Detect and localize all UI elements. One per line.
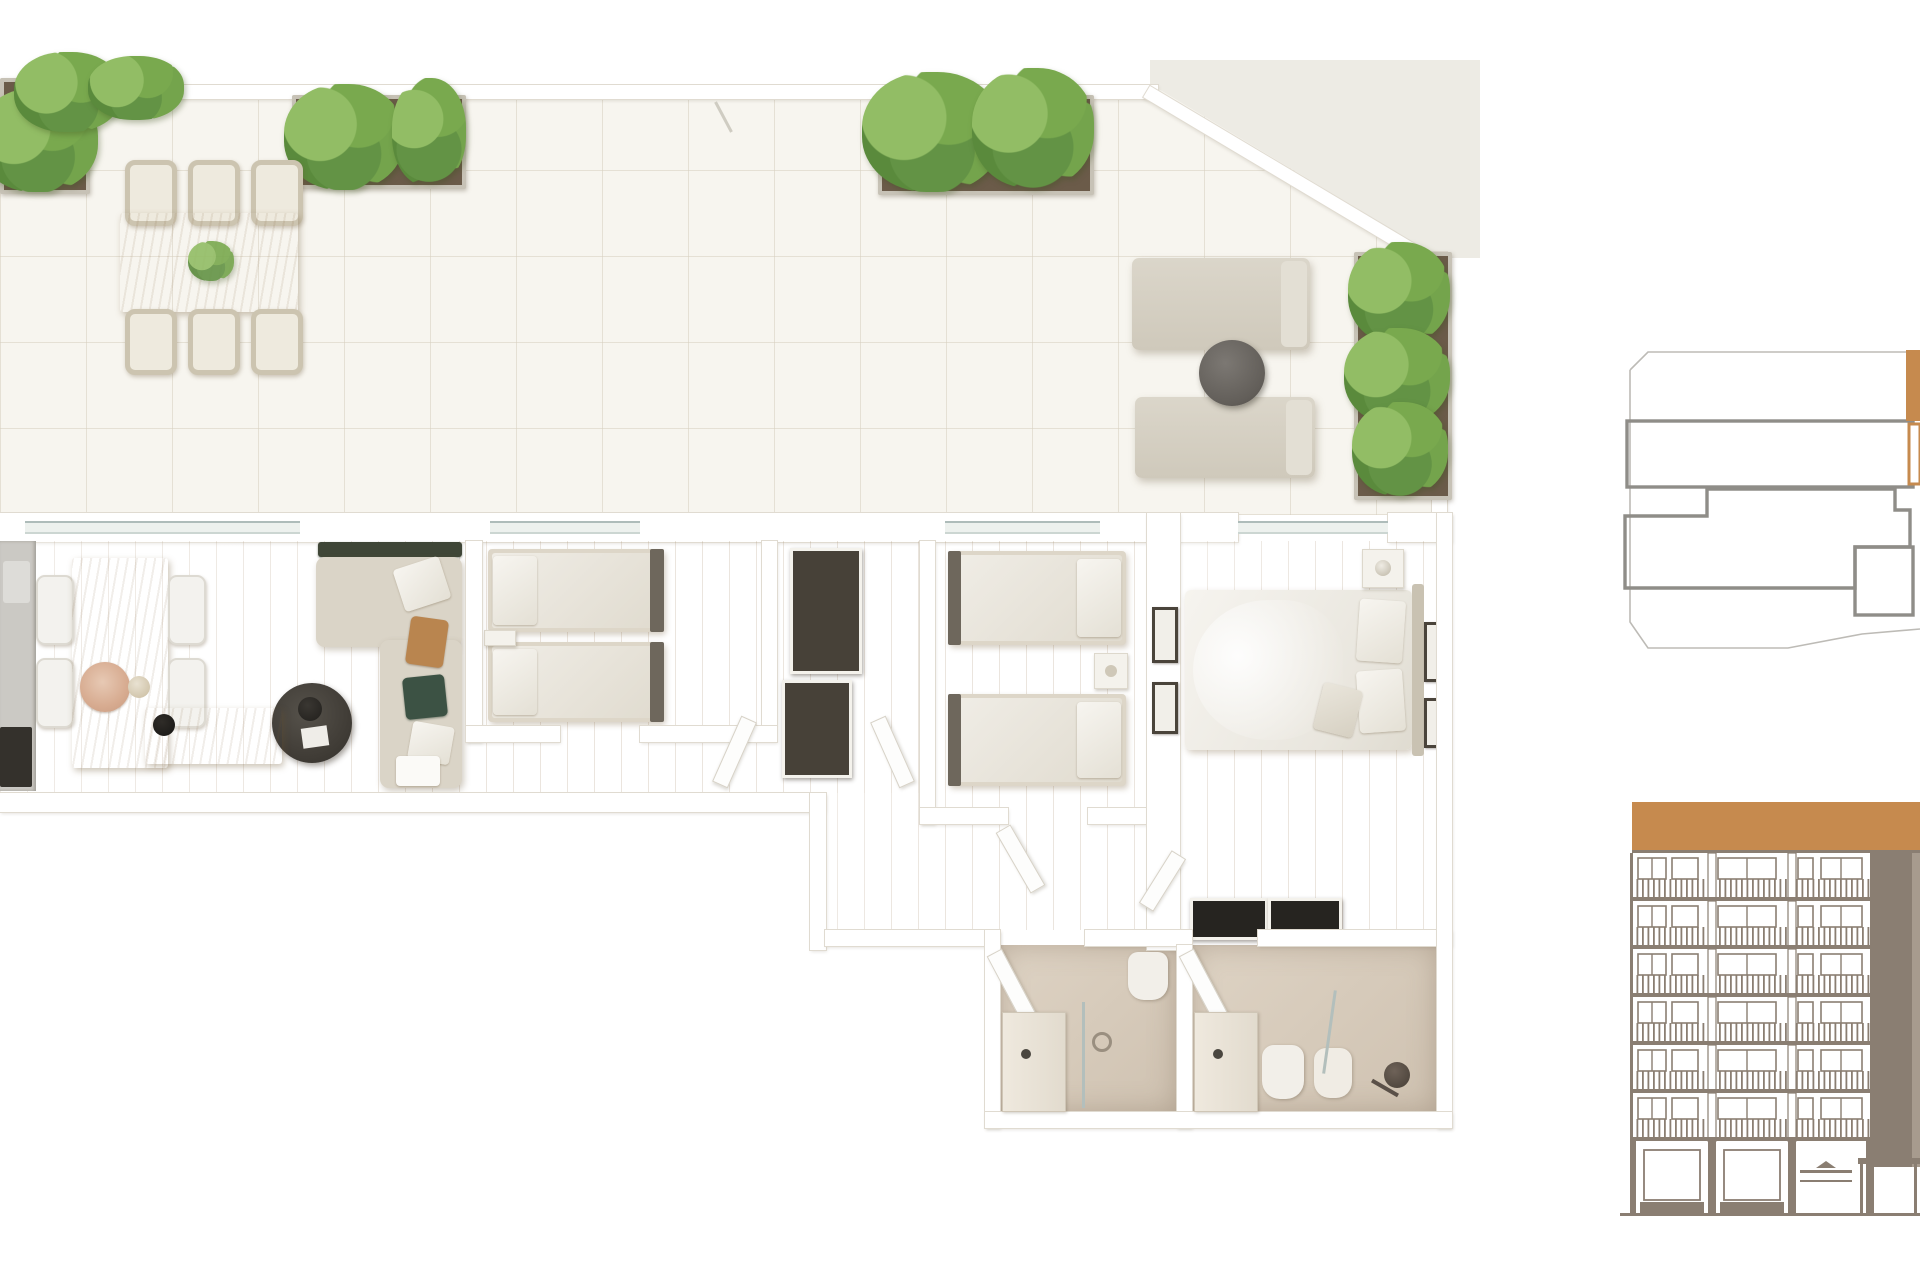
bath1-faucet xyxy=(1021,1049,1031,1059)
master-bed xyxy=(1185,590,1412,750)
elevation-base-line xyxy=(1620,1213,1920,1216)
elevation-canopy xyxy=(1858,1158,1920,1164)
elevation-diagram xyxy=(1620,778,1920,1248)
wall-living-bedroom1 xyxy=(466,541,482,742)
wall-bedroom2-bottom-b xyxy=(1088,808,1147,824)
wall-bath-top-c xyxy=(1258,930,1452,946)
bed-foot-frame xyxy=(650,642,664,722)
lounger-headrest xyxy=(1281,261,1307,347)
bed-foot-frame xyxy=(948,551,961,645)
bath2-bidet xyxy=(1314,1048,1352,1098)
outdoor-chair xyxy=(251,309,303,375)
outdoor-chair xyxy=(188,309,240,375)
bath2-shower-head xyxy=(1384,1062,1410,1088)
wall-bath-top-a xyxy=(825,930,1000,946)
bath1-vanity xyxy=(1002,1012,1066,1112)
bed-foot-frame xyxy=(948,694,961,786)
keyplan-diagram xyxy=(1620,330,1920,665)
master-wardrobe xyxy=(1190,898,1268,940)
nightstand-lamp xyxy=(1375,560,1391,576)
bath2-vanity xyxy=(1194,1012,1258,1112)
sun-lounger xyxy=(1135,397,1315,478)
bed-pillow xyxy=(1077,702,1121,778)
keyplan-outer-outline xyxy=(1630,352,1920,648)
bed-pillow xyxy=(493,556,537,625)
sofa-pillow-amber xyxy=(405,616,449,669)
wall-right-outer xyxy=(1437,513,1452,1128)
wall-bedroom1-right xyxy=(762,541,777,726)
keyplan-unit-outlines xyxy=(1625,421,1913,615)
bed-pillow xyxy=(1356,668,1406,733)
hall-wardrobe xyxy=(790,548,862,674)
twin-bed xyxy=(948,694,1126,786)
plant-bush xyxy=(88,56,184,120)
nightstand xyxy=(1094,653,1128,689)
table-book xyxy=(301,725,330,748)
dining-chair xyxy=(36,658,74,728)
floorplan-render xyxy=(0,0,1920,1280)
twin-bed xyxy=(488,642,664,722)
wall-bedroom2-left xyxy=(920,541,935,824)
sofa-shelf-plants xyxy=(318,542,462,557)
plant-bush xyxy=(1352,402,1448,496)
wall-bottom-left xyxy=(0,793,825,812)
sliding-door-bedroom-1 xyxy=(490,521,640,534)
bed-pillow xyxy=(493,649,537,715)
bath2-toilet xyxy=(1262,1045,1304,1099)
twin-bed xyxy=(948,551,1126,645)
dining-chair xyxy=(36,575,74,645)
elevation-side-mass xyxy=(1870,853,1912,1167)
bed-pillow xyxy=(1356,598,1406,663)
sun-lounger xyxy=(1132,258,1310,350)
dining-chair xyxy=(168,575,206,645)
sideboard-lamp xyxy=(153,714,175,736)
wall-bottom-outer xyxy=(985,1112,1452,1128)
bed-foot-frame xyxy=(650,549,664,632)
sofa-pillow-green xyxy=(402,674,448,720)
table-centerpiece-plant xyxy=(188,241,234,281)
bath1-toilet xyxy=(1128,952,1168,1000)
hall-wardrobe xyxy=(782,680,852,778)
nightstand xyxy=(1362,549,1404,588)
kitchen-sink xyxy=(3,561,30,603)
sofa-throw xyxy=(396,756,440,786)
lounge-side-table xyxy=(1199,340,1265,406)
table-plate xyxy=(80,662,130,712)
wall-frame xyxy=(1152,607,1178,663)
kitchen-counter xyxy=(0,541,36,791)
sideboard xyxy=(145,708,282,764)
coffee-table-round xyxy=(272,683,352,763)
kitchen-cooktop xyxy=(0,727,32,787)
wall-hall-step xyxy=(810,793,826,950)
twin-bed xyxy=(488,549,664,632)
outdoor-dining-table xyxy=(120,213,298,312)
wall-bath-top-b xyxy=(1085,930,1192,946)
bath1-shower-glass xyxy=(1082,1002,1085,1108)
nightstand xyxy=(484,630,516,646)
bath2-faucet xyxy=(1213,1049,1223,1059)
nightstand-knob xyxy=(1105,665,1117,677)
wall-bedroom2-bottom-a xyxy=(920,808,1008,824)
keyplan-highlight-outline xyxy=(1909,424,1920,484)
keyplan-highlight-unit xyxy=(1906,350,1920,421)
outdoor-chair xyxy=(125,309,177,375)
bath1-shower-drain xyxy=(1092,1032,1112,1052)
plant-bush xyxy=(972,68,1094,188)
table-vase xyxy=(298,697,322,721)
table-jar xyxy=(128,676,150,698)
plant-bush xyxy=(392,78,466,186)
wall-bedroom1-bottom-b xyxy=(640,726,777,742)
wall-frame xyxy=(1152,682,1178,734)
bed-pillow xyxy=(1077,559,1121,637)
sliding-door-living xyxy=(25,521,300,534)
master-headboard xyxy=(1412,584,1424,756)
sliding-door-bedroom-2 xyxy=(945,521,1100,534)
elevation-side-mass-light xyxy=(1912,853,1920,1167)
wall-bedroom1-bottom-a xyxy=(466,726,560,742)
elevation-highlight-band xyxy=(1632,802,1920,852)
lounger-headrest xyxy=(1286,400,1312,475)
sliding-door-master xyxy=(1238,521,1388,534)
